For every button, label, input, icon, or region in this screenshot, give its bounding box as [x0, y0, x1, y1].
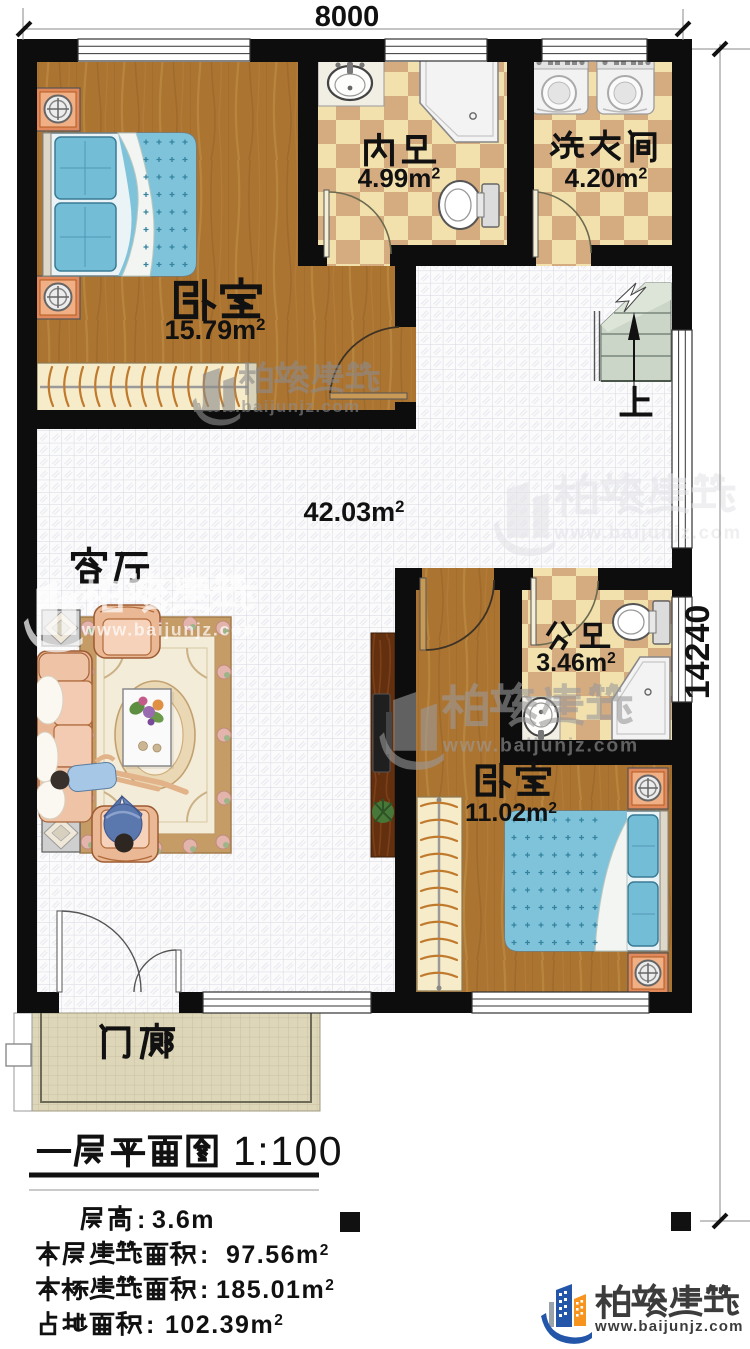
- svg-text:42.03m2: 42.03m2: [304, 497, 405, 527]
- svg-text:185.01m2: 185.01m2: [216, 1276, 335, 1304]
- svg-text:4.20m2: 4.20m2: [565, 163, 648, 193]
- svg-text:www.baijunjz.com: www.baijunjz.com: [191, 397, 360, 416]
- svg-text:4.99m2: 4.99m2: [358, 163, 441, 193]
- svg-text:www.baijunjz.com: www.baijunjz.com: [442, 736, 639, 757]
- svg-text:www.baijunjz.com: www.baijunjz.com: [81, 620, 261, 640]
- svg-text:14240: 14240: [679, 605, 717, 700]
- svg-text:3.46m2: 3.46m2: [536, 649, 616, 677]
- svg-text::: :: [137, 1206, 145, 1234]
- svg-text:www.baijunjz.com: www.baijunjz.com: [553, 522, 742, 543]
- svg-text:15.79m2: 15.79m2: [165, 315, 266, 345]
- svg-text:3.6m: 3.6m: [152, 1206, 215, 1234]
- svg-text:97.56m2: 97.56m2: [226, 1241, 330, 1269]
- svg-text:1:100: 1:100: [233, 1128, 343, 1174]
- svg-text:102.39m2: 102.39m2: [165, 1311, 284, 1339]
- svg-text:www.baijunjz.com: www.baijunjz.com: [594, 1318, 744, 1335]
- svg-text::: :: [146, 1311, 154, 1339]
- svg-text::: :: [200, 1241, 208, 1269]
- svg-text::: :: [200, 1276, 208, 1304]
- svg-text:11.02m2: 11.02m2: [465, 799, 557, 827]
- svg-text:8000: 8000: [315, 1, 380, 33]
